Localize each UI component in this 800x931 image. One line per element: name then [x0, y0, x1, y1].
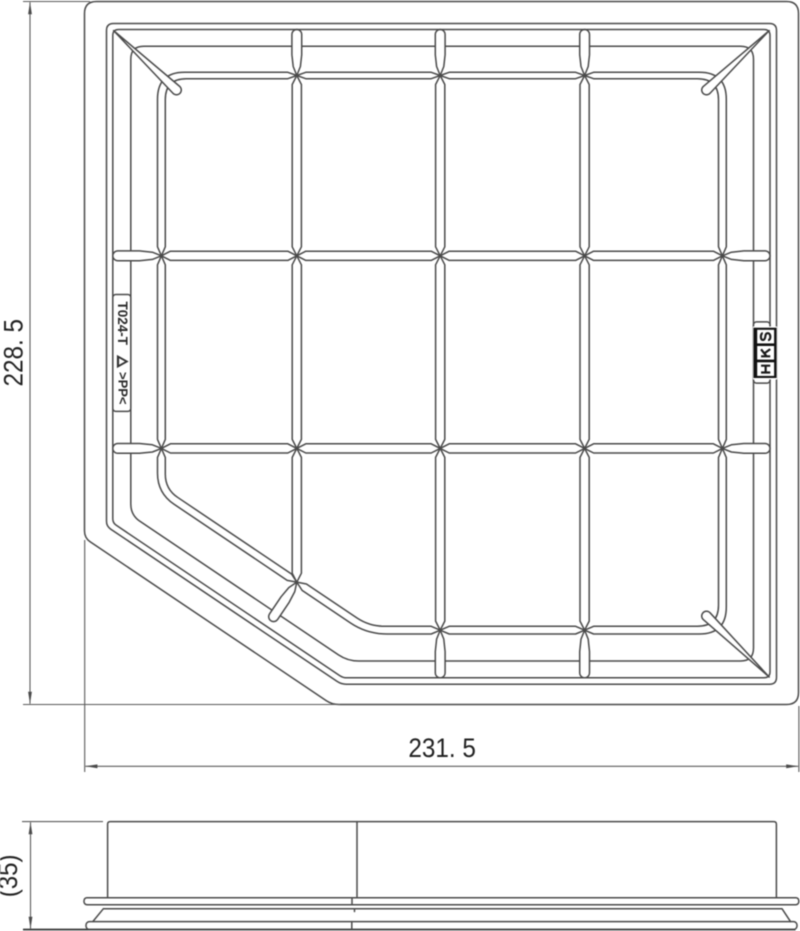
- svg-text:T024-T: T024-T: [115, 302, 130, 346]
- svg-text:228. 5: 228. 5: [0, 319, 29, 387]
- svg-text:231. 5: 231. 5: [408, 734, 476, 763]
- svg-text:>PP<: >PP<: [116, 372, 131, 405]
- svg-text:(35): (35): [0, 854, 23, 897]
